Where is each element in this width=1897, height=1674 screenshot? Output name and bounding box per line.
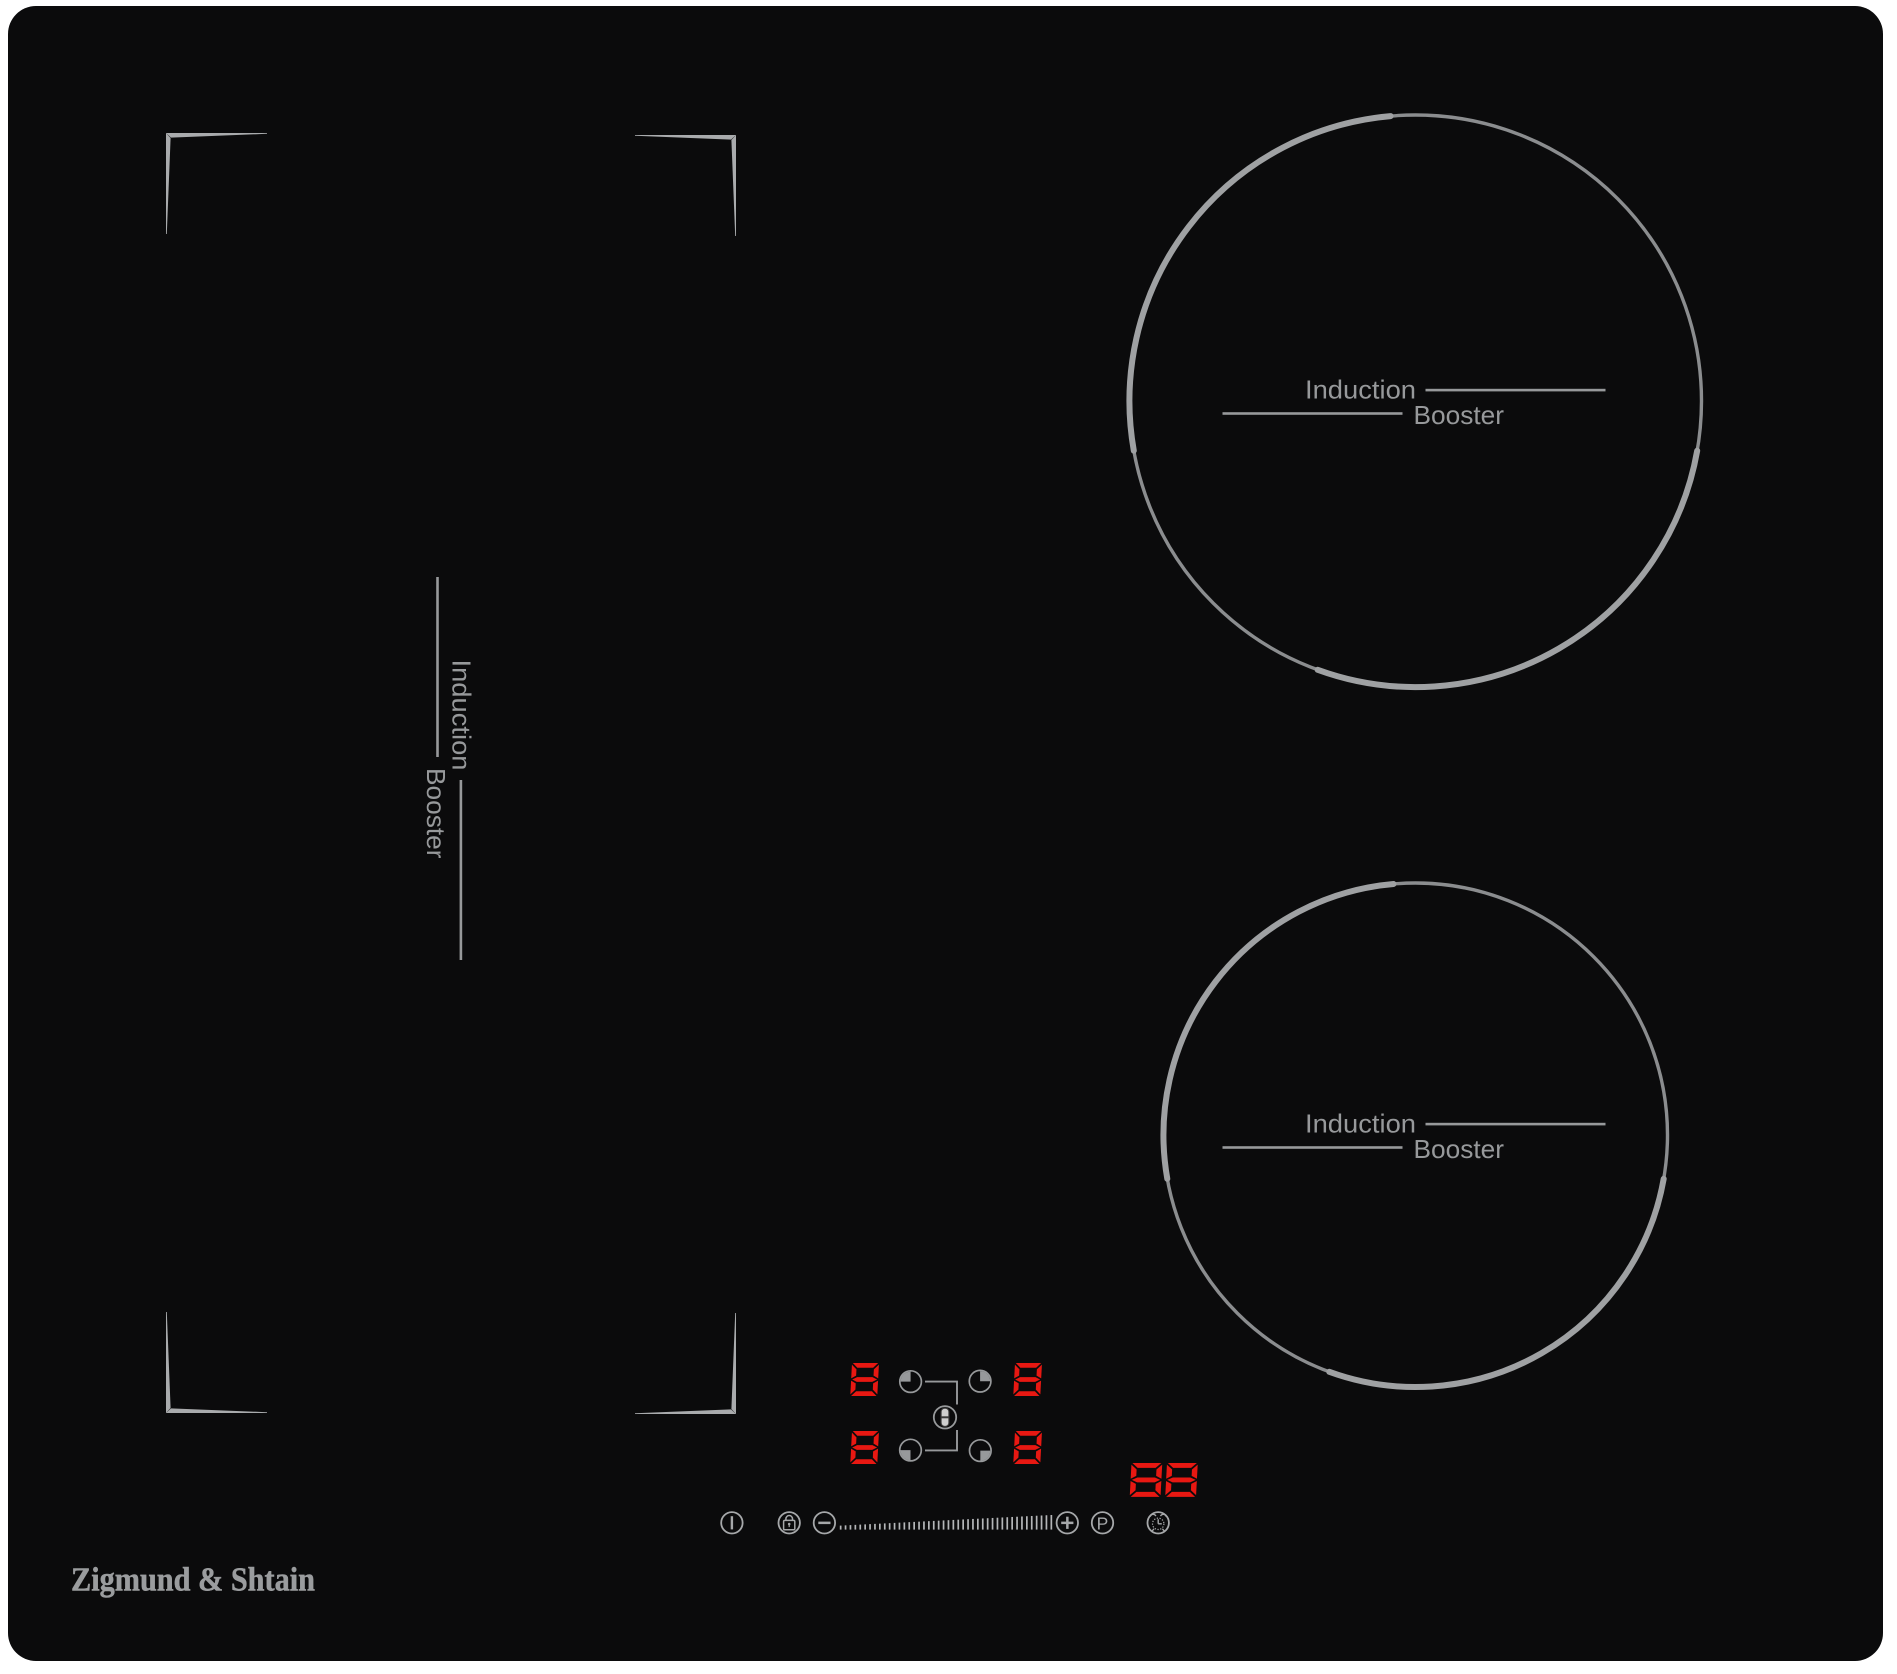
svg-text:Booster: Booster [421,768,451,859]
svg-text:Booster: Booster [1414,1134,1505,1164]
svg-text:Induction: Induction [1305,375,1416,405]
svg-text:Induction: Induction [447,660,477,771]
svg-text:Booster: Booster [1414,400,1505,430]
svg-text:Induction: Induction [1305,1109,1416,1139]
svg-text:P: P [1097,1513,1109,1533]
svg-text:Zigmund & Shtain: Zigmund & Shtain [71,1562,315,1599]
